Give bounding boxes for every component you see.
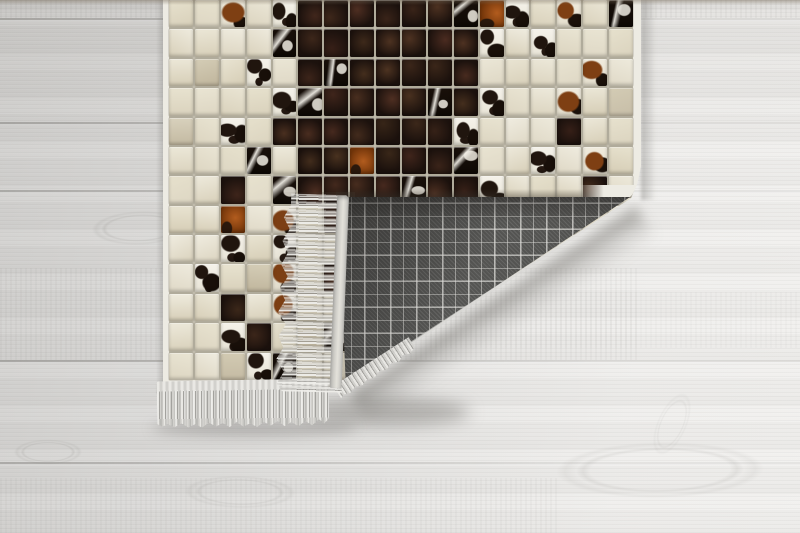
mosaic-tile (169, 176, 193, 203)
mosaic-tile (583, 88, 607, 115)
photo-top-edge (0, 0, 800, 5)
mosaic-tile (247, 29, 271, 56)
mosaic-tile (247, 88, 271, 115)
mosaic-tile (195, 176, 219, 203)
mosaic-tile (402, 29, 426, 56)
mosaic-tile (609, 118, 633, 145)
mosaic-tile (247, 118, 271, 145)
mosaic-tile (506, 29, 530, 56)
mosaic-tile (531, 29, 555, 56)
mosaic-tile (195, 264, 219, 291)
mosaic-tile (324, 147, 348, 174)
mosaic-tile (454, 118, 478, 145)
mosaic-tile (169, 118, 193, 145)
mosaic-tile (480, 59, 504, 86)
mosaic-tile (247, 353, 271, 380)
mosaic-tile (480, 118, 504, 145)
mosaic-tile (428, 118, 452, 145)
mosaic-tile (221, 118, 245, 145)
mosaic-tile (169, 323, 193, 350)
mosaic-tile (480, 88, 504, 115)
mosaic-tile (273, 88, 297, 115)
mosaic-tile (195, 29, 219, 56)
mosaic-tile (195, 235, 219, 262)
mosaic-tile (195, 353, 219, 380)
mosaic-tile (583, 59, 607, 86)
mosaic-tile (221, 59, 245, 86)
mosaic-tile (221, 264, 245, 291)
mosaic-tile (557, 29, 581, 56)
mosaic-tile (247, 147, 271, 174)
mosaic-tile (454, 29, 478, 56)
mosaic-tile (506, 118, 530, 145)
mosaic-tile (609, 88, 633, 115)
mosaic-tile (298, 29, 322, 56)
mosaic-tile (454, 147, 478, 174)
mosaic-tile (169, 147, 193, 174)
mosaic-tile (247, 176, 271, 203)
mosaic-tile (169, 206, 193, 233)
mosaic-tile (557, 147, 581, 174)
mosaic-tile (402, 147, 426, 174)
mosaic-tile (195, 59, 219, 86)
mosaic-tile (506, 88, 530, 115)
mosaic-tile (609, 147, 633, 174)
mosaic-tile (531, 59, 555, 86)
mosaic-tile (428, 147, 452, 174)
rug-right-shadow (641, 0, 656, 200)
mosaic-tile (221, 29, 245, 56)
mosaic-tile (350, 59, 374, 86)
mosaic-tile (221, 323, 245, 350)
mosaic-tile (428, 59, 452, 86)
mosaic-tile (298, 118, 322, 145)
mosaic-tile (506, 147, 530, 174)
mosaic-tile (350, 29, 374, 56)
mosaic-tile (324, 29, 348, 56)
mosaic-tile (221, 235, 245, 262)
mosaic-tile (324, 118, 348, 145)
mosaic-tile (195, 118, 219, 145)
mosaic-tile (195, 323, 219, 350)
mosaic-tile (531, 88, 555, 115)
rug-corner-border (578, 185, 635, 199)
mosaic-tile (350, 147, 374, 174)
mosaic-tile (247, 264, 271, 291)
mosaic-tile (247, 235, 271, 262)
mosaic-tile (454, 88, 478, 115)
mosaic-tile (247, 294, 271, 321)
mosaic-tile (273, 29, 297, 56)
mosaic-tile (169, 294, 193, 321)
mosaic-tile (609, 59, 633, 86)
mosaic-tile (402, 88, 426, 115)
mosaic-tile (583, 147, 607, 174)
fringe-tassels (157, 389, 330, 430)
mosaic-tile (221, 206, 245, 233)
mosaic-tile (221, 88, 245, 115)
mosaic-tile (402, 59, 426, 86)
wood-knot (2, 435, 94, 469)
mosaic-tile (273, 118, 297, 145)
mosaic-tile (195, 294, 219, 321)
mosaic-tile (376, 88, 400, 115)
mosaic-tile (480, 29, 504, 56)
mosaic-tile (169, 264, 193, 291)
mosaic-tile (169, 235, 193, 262)
mosaic-tile (221, 294, 245, 321)
mosaic-tile (298, 147, 322, 174)
mosaic-tile (428, 88, 452, 115)
mosaic-tile (506, 59, 530, 86)
mosaic-tile (221, 176, 245, 203)
mosaic-tile (247, 59, 271, 86)
mosaic-tile (195, 88, 219, 115)
mosaic-tile (195, 206, 219, 233)
mosaic-tile (480, 147, 504, 174)
mosaic-tile (169, 29, 193, 56)
mosaic-tile (350, 118, 374, 145)
mosaic-tile (169, 353, 193, 380)
mosaic-tile (324, 59, 348, 86)
mosaic-tile (531, 118, 555, 145)
mosaic-tile (428, 29, 452, 56)
mosaic-tile (376, 59, 400, 86)
mosaic-tile (454, 59, 478, 86)
mosaic-tile (557, 59, 581, 86)
rug-left-shadow (156, 0, 163, 388)
mosaic-tile (609, 29, 633, 56)
mosaic-tile (221, 353, 245, 380)
mosaic-tile (221, 147, 245, 174)
mosaic-tile (169, 59, 193, 86)
mosaic-tile (557, 88, 581, 115)
mosaic-tile (350, 88, 374, 115)
mosaic-tile (169, 88, 193, 115)
mosaic-tile (247, 206, 271, 233)
mosaic-tile (583, 118, 607, 145)
mosaic-tile (298, 88, 322, 115)
mosaic-tile (583, 29, 607, 56)
mosaic-tile (557, 118, 581, 145)
mosaic-tile (376, 29, 400, 56)
mosaic-tile (402, 118, 426, 145)
product-photo (0, 0, 800, 533)
mosaic-tile (531, 147, 555, 174)
mosaic-tile (195, 147, 219, 174)
mosaic-tile (376, 118, 400, 145)
mosaic-tile (298, 59, 322, 86)
mosaic-tile (273, 59, 297, 86)
mosaic-tile (247, 323, 271, 350)
mosaic-tile (273, 147, 297, 174)
mosaic-tile (376, 147, 400, 174)
mosaic-tile (324, 88, 348, 115)
